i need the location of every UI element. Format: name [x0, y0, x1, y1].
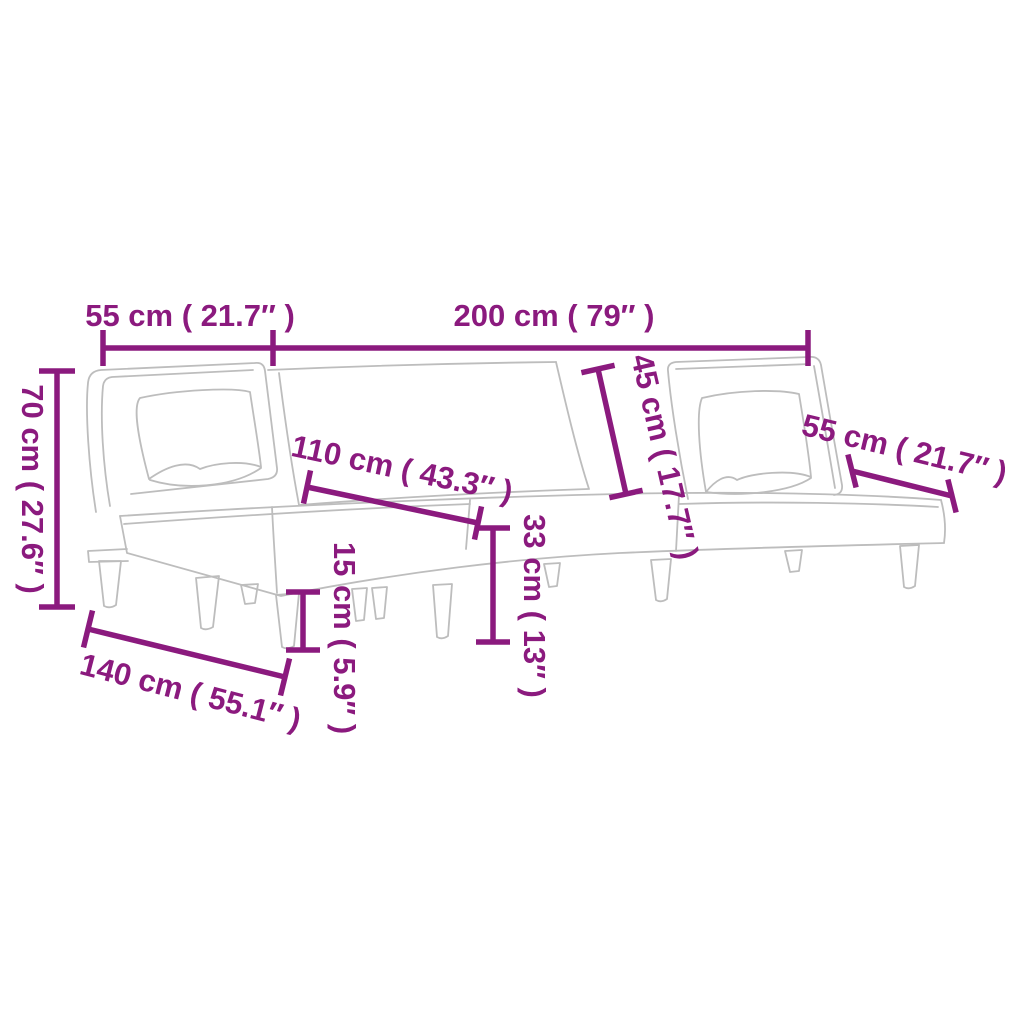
right-pillow-fold — [706, 478, 811, 494]
dim-label-right-seat-depth: 55 cm ( 21.7″ ) — [798, 407, 1010, 490]
dim-label-left-section-back-width: 55 cm ( 21.7″ ) — [85, 298, 295, 333]
dim-label-back-height: 70 cm ( 27.6″ ) — [15, 384, 50, 594]
sofa-leg — [372, 587, 387, 619]
right-pillow — [699, 391, 811, 492]
middle-backrest-fold-edge — [556, 362, 589, 489]
sofa-leg — [276, 593, 299, 648]
dim-label-total-back-width: 200 cm ( 79″ ) — [454, 298, 655, 333]
seat-top-front-edge — [120, 493, 941, 516]
product-dimension-image: 55 cm ( 21.7″ ) 200 cm ( 79″ ) 70 cm ( 2… — [0, 0, 1024, 1024]
sofa-leg — [433, 584, 452, 638]
seat-right-cap — [941, 500, 945, 543]
dim-label-leg-height: 15 cm ( 5.9″ ) — [327, 542, 362, 734]
sofa-leg — [99, 561, 121, 607]
dim-label-backrest-length: 45 cm ( 17.7″ ) — [624, 351, 705, 563]
seat-top-piping-right — [679, 503, 938, 507]
sofa-leg — [785, 550, 802, 572]
dim-line-seat-height — [476, 528, 510, 642]
dim-label-seat-height: 33 cm ( 13″ ) — [517, 514, 552, 698]
seat-top-piping-left — [124, 504, 470, 524]
sofa-dimension-diagram: 55 cm ( 21.7″ ) 200 cm ( 79″ ) 70 cm ( 2… — [0, 0, 1024, 1024]
seat-front-seam-1 — [466, 500, 470, 549]
sofa-leg — [196, 576, 219, 629]
left-backrest — [87, 363, 277, 512]
frame-rail — [88, 549, 128, 562]
left-pillow — [137, 390, 261, 479]
middle-backrest-top-edge — [268, 362, 556, 370]
sofa-leg — [651, 559, 671, 601]
left-pillow-fold — [150, 468, 261, 486]
dimension-labels: 55 cm ( 21.7″ ) 200 cm ( 79″ ) 70 cm ( 2… — [15, 298, 1010, 737]
dim-label-total-depth: 140 cm ( 55.1″ ) — [76, 646, 304, 737]
dim-line-leg-height — [286, 592, 320, 650]
sofa-outline — [87, 357, 945, 648]
chaise-corner-edge — [272, 507, 277, 593]
sofa-leg — [900, 545, 919, 588]
